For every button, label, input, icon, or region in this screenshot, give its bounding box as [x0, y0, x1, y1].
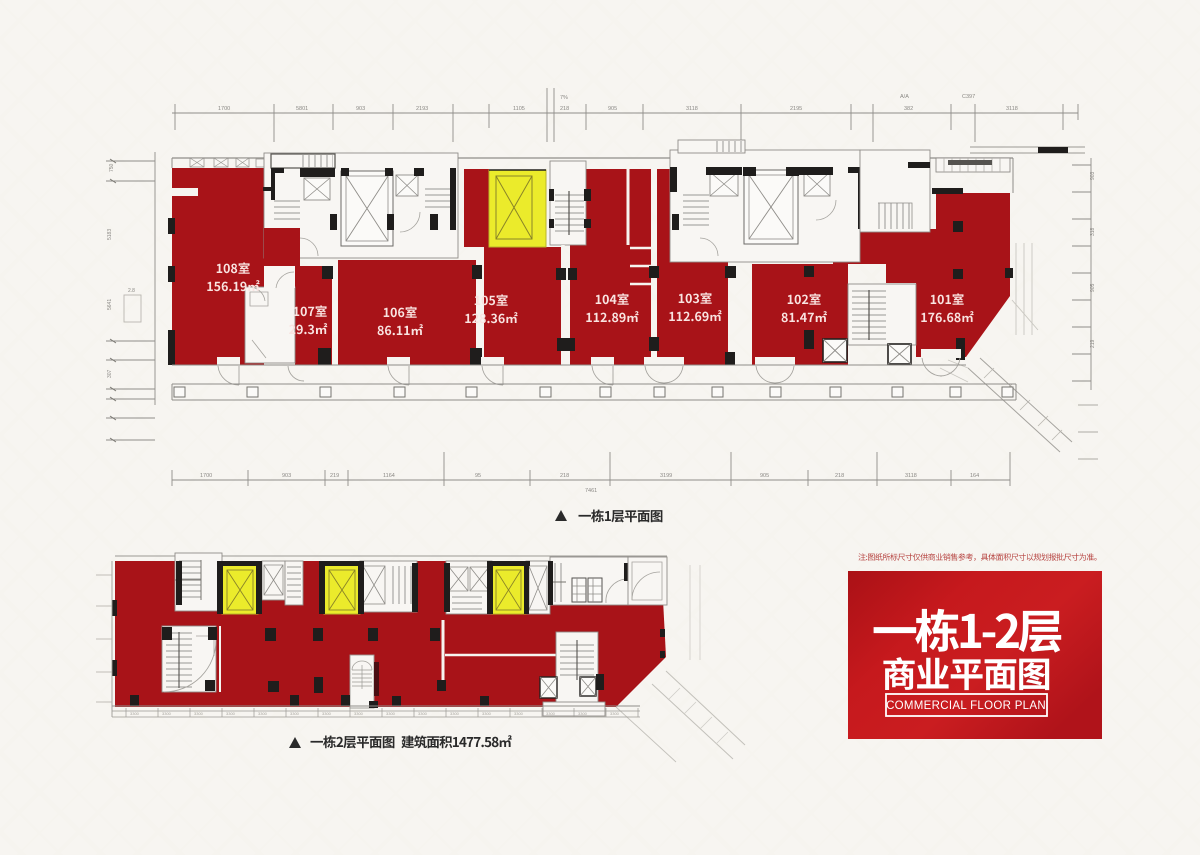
- svg-text:218: 218: [560, 106, 569, 112]
- svg-text:3300: 3300: [386, 711, 396, 716]
- svg-text:3300: 3300: [450, 711, 460, 716]
- svg-text:5183: 5183: [107, 229, 113, 240]
- svg-text:903: 903: [282, 473, 291, 479]
- svg-text:3300: 3300: [610, 711, 620, 716]
- svg-text:A/A: A/A: [900, 94, 909, 100]
- svg-text:164: 164: [970, 473, 979, 479]
- svg-text:2195: 2195: [790, 106, 802, 112]
- svg-text:219: 219: [330, 473, 339, 479]
- svg-text:307: 307: [107, 369, 113, 378]
- svg-text:903: 903: [1090, 171, 1096, 180]
- svg-text:3118: 3118: [1006, 106, 1018, 112]
- svg-text:5641: 5641: [107, 299, 113, 310]
- svg-text:3300: 3300: [226, 711, 236, 716]
- svg-text:3300: 3300: [546, 711, 556, 716]
- svg-text:905: 905: [1090, 283, 1096, 292]
- svg-text:3300: 3300: [514, 711, 524, 716]
- svg-text:382: 382: [904, 106, 913, 112]
- svg-text:318: 318: [1090, 227, 1096, 236]
- svg-text:7%: 7%: [560, 95, 568, 101]
- svg-text:3300: 3300: [354, 711, 364, 716]
- svg-text:C397: C397: [962, 94, 975, 100]
- svg-text:905: 905: [608, 106, 617, 112]
- svg-text:3300: 3300: [482, 711, 492, 716]
- svg-text:3199: 3199: [660, 473, 672, 479]
- svg-text:3300: 3300: [418, 711, 428, 716]
- svg-text:903: 903: [356, 106, 365, 112]
- svg-text:COMMERCIAL FLOOR PLAN: COMMERCIAL FLOOR PLAN: [886, 700, 1046, 712]
- svg-text:1700: 1700: [200, 473, 212, 479]
- svg-text:1700: 1700: [218, 106, 230, 112]
- svg-text:3300: 3300: [322, 711, 332, 716]
- svg-text:3300: 3300: [578, 711, 588, 716]
- svg-text:3300: 3300: [162, 711, 172, 716]
- svg-text:218: 218: [560, 473, 569, 479]
- svg-text:3118: 3118: [686, 106, 698, 112]
- svg-text:2.8: 2.8: [128, 288, 135, 294]
- svg-text:3300: 3300: [130, 711, 140, 716]
- svg-text:219: 219: [1090, 339, 1096, 348]
- svg-text:218: 218: [835, 473, 844, 479]
- svg-text:2193: 2193: [416, 106, 428, 112]
- svg-text:7461: 7461: [585, 488, 597, 494]
- svg-text:3300: 3300: [290, 711, 300, 716]
- svg-text:95: 95: [475, 473, 481, 479]
- svg-text:3300: 3300: [194, 711, 204, 716]
- svg-text:1105: 1105: [513, 106, 525, 112]
- svg-text:750: 750: [109, 163, 115, 172]
- svg-text:3300: 3300: [258, 711, 268, 716]
- svg-text:3118: 3118: [905, 473, 917, 479]
- svg-text:1164: 1164: [383, 473, 395, 479]
- svg-text:5801: 5801: [296, 106, 308, 112]
- svg-text:905: 905: [760, 473, 769, 479]
